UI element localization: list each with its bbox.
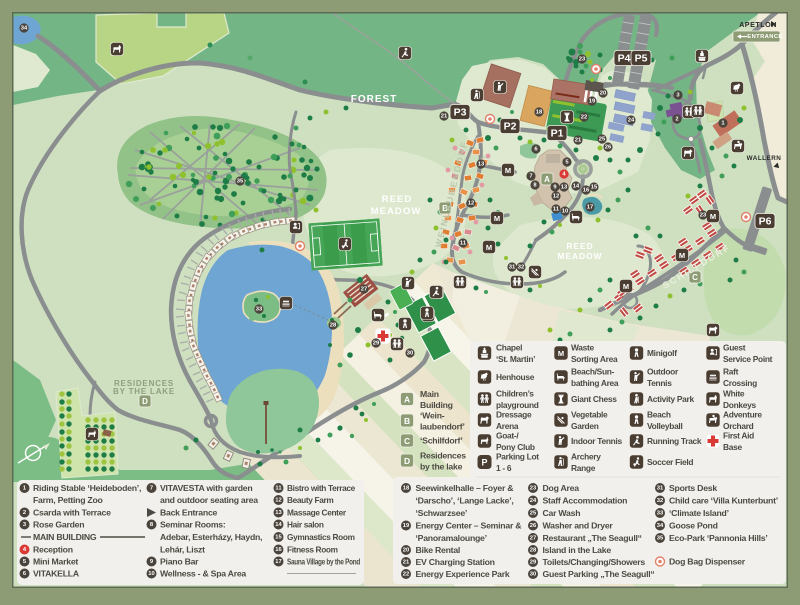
svg-text:33: 33 [256, 306, 263, 312]
svg-text:Energy Experience Park: Energy Experience Park [416, 569, 510, 579]
svg-text:Reception: Reception [33, 545, 73, 555]
svg-text:22: 22 [581, 114, 587, 120]
svg-text:Raft: Raft [723, 367, 739, 377]
svg-text:34: 34 [657, 523, 664, 529]
svg-text:First Aid: First Aid [723, 431, 754, 441]
svg-text:10: 10 [148, 571, 154, 577]
svg-text:Seminar Rooms:: Seminar Rooms: [160, 520, 226, 530]
svg-text:28: 28 [530, 547, 537, 553]
svg-text:‘Darscho’, ‘Lange Lacke’,: ‘Darscho’, ‘Lange Lacke’, [416, 496, 514, 506]
svg-text:Toilets/Changing/Showers: Toilets/Changing/Showers [543, 557, 646, 567]
svg-text:P4: P4 [618, 53, 631, 65]
svg-text:Sports Desk: Sports Desk [669, 483, 717, 493]
svg-text:22: 22 [403, 571, 409, 577]
svg-text:‘Schwarzsee’: ‘Schwarzsee’ [416, 508, 468, 518]
svg-text:Arena: Arena [496, 421, 519, 431]
svg-text:Adventure: Adventure [723, 410, 762, 420]
svg-text:Henhouse: Henhouse [496, 372, 535, 382]
svg-text:Guest Parking „The Seagull“: Guest Parking „The Seagull“ [543, 569, 655, 579]
svg-text:20: 20 [403, 547, 409, 553]
svg-text:20: 20 [600, 90, 606, 96]
svg-text:FOREST: FOREST [351, 94, 398, 105]
svg-text:Soccer Field: Soccer Field [647, 457, 693, 467]
svg-text:10: 10 [562, 208, 568, 214]
svg-text:Vegetable: Vegetable [571, 410, 608, 420]
svg-text:laubendorf’: laubendorf’ [420, 421, 465, 431]
svg-text:14: 14 [275, 522, 282, 528]
svg-text:Residences: Residences [420, 450, 466, 460]
svg-text:2: 2 [675, 116, 678, 122]
svg-text:Staff Accommodation: Staff Accommodation [543, 496, 628, 506]
svg-text:Sauna Village by the Pond: Sauna Village by the Pond [287, 557, 360, 567]
svg-text:Volleyball: Volleyball [647, 421, 682, 431]
svg-text:19: 19 [589, 98, 596, 104]
svg-text:Island in the Lake: Island in the Lake [543, 545, 612, 555]
svg-text:Crossing: Crossing [723, 378, 757, 388]
svg-text:ENTRANCE: ENTRANCE [747, 34, 782, 40]
svg-text:19: 19 [403, 523, 410, 529]
svg-text:Car Wash: Car Wash [543, 508, 581, 518]
svg-text:Energy Center – Seminar &: Energy Center – Seminar & [416, 521, 522, 531]
svg-text:29: 29 [530, 559, 537, 565]
svg-text:18: 18 [403, 485, 410, 491]
svg-text:VITAVESTA with garden: VITAVESTA with garden [160, 483, 252, 493]
svg-text:14: 14 [573, 183, 580, 189]
svg-text:Children’s: Children’s [496, 389, 534, 399]
svg-text:Gymnastics Room: Gymnastics Room [287, 532, 355, 542]
svg-text:25: 25 [530, 510, 537, 516]
svg-text:23: 23 [579, 56, 586, 62]
svg-text:Riding Stable ‘Heideboden’,: Riding Stable ‘Heideboden’, [33, 483, 141, 493]
svg-text:Indoor Tennis: Indoor Tennis [571, 436, 622, 446]
svg-text:Washer and Dryer: Washer and Dryer [543, 521, 614, 531]
svg-text:Base: Base [723, 442, 742, 452]
svg-text:7: 7 [529, 173, 532, 179]
svg-text:Eco-Park ‘Pannonia Hills’: Eco-Park ‘Pannonia Hills’ [669, 533, 768, 543]
svg-text:11: 11 [460, 240, 467, 246]
svg-text:bathing Area: bathing Area [571, 378, 619, 388]
svg-text:Beach/Sun-: Beach/Sun- [571, 367, 615, 377]
svg-text:25: 25 [599, 136, 606, 142]
svg-text:Bistro with Terrace: Bistro with Terrace [287, 483, 356, 493]
svg-text:Piano Bar: Piano Bar [160, 557, 199, 567]
svg-text:32: 32 [657, 498, 663, 504]
svg-text:EV Charging Station: EV Charging Station [416, 557, 495, 567]
svg-text:Dog Area: Dog Area [543, 483, 580, 493]
svg-text:P1: P1 [551, 128, 564, 140]
svg-text:by the lake: by the lake [420, 461, 463, 471]
svg-text:12: 12 [468, 200, 474, 206]
svg-text:‘Schilfdorf’: ‘Schilfdorf’ [420, 436, 463, 446]
svg-text:Chapel: Chapel [496, 343, 522, 353]
svg-text:16: 16 [275, 547, 282, 553]
svg-text:‘Wein-: ‘Wein- [420, 410, 445, 420]
svg-text:12: 12 [553, 193, 559, 199]
svg-text:Outdoor: Outdoor [647, 367, 679, 377]
svg-text:24: 24 [628, 117, 635, 123]
svg-text:M: M [679, 251, 685, 260]
svg-text:Adebar, Esterházy, Haydn,: Adebar, Esterházy, Haydn, [160, 532, 262, 542]
svg-text:‘Climate Island’: ‘Climate Island’ [669, 508, 729, 518]
svg-text:23: 23 [700, 212, 707, 218]
svg-text:REED: REED [382, 194, 413, 205]
svg-text:WALLERN: WALLERN [747, 155, 782, 162]
svg-text:29: 29 [373, 340, 380, 346]
svg-text:Service Point: Service Point [723, 354, 773, 364]
svg-text:17: 17 [587, 204, 593, 210]
svg-text:Parking Lot: Parking Lot [496, 452, 539, 462]
svg-text:21: 21 [403, 559, 410, 565]
svg-text:Tennis: Tennis [647, 378, 672, 388]
svg-text:P2: P2 [504, 121, 517, 133]
svg-text:Goat-/: Goat-/ [496, 431, 519, 441]
svg-text:Mini Market: Mini Market [33, 557, 78, 567]
svg-text:35: 35 [237, 178, 244, 184]
svg-text:MEADOW: MEADOW [371, 206, 422, 217]
svg-text:Range: Range [571, 463, 596, 473]
svg-text:27: 27 [530, 535, 536, 541]
svg-text:13: 13 [275, 510, 282, 516]
svg-text:24: 24 [530, 498, 537, 504]
svg-text:M: M [558, 349, 564, 358]
svg-text:33: 33 [657, 510, 664, 516]
svg-text:D: D [404, 456, 410, 466]
svg-text:Building: Building [420, 400, 453, 410]
svg-text:30: 30 [530, 571, 536, 577]
svg-text:A: A [544, 175, 550, 184]
svg-text:M: M [486, 243, 492, 252]
svg-text:P5: P5 [635, 53, 648, 65]
svg-text:B: B [404, 416, 410, 426]
svg-text:Restaurant „The Seagull“: Restaurant „The Seagull“ [543, 533, 642, 543]
svg-text:Donkeys: Donkeys [723, 400, 756, 410]
svg-text:15: 15 [591, 184, 598, 190]
svg-text:Rose Garden: Rose Garden [33, 520, 84, 530]
svg-text:31: 31 [509, 264, 516, 270]
svg-text:M: M [494, 214, 500, 223]
svg-text:Activity Park: Activity Park [647, 394, 694, 404]
svg-text:Minigolf: Minigolf [647, 348, 677, 358]
svg-text:13: 13 [561, 184, 568, 190]
svg-text:12: 12 [275, 497, 281, 503]
svg-text:MEADOW: MEADOW [557, 251, 602, 261]
svg-text:21: 21 [441, 113, 448, 119]
svg-text:Farm, Petting Zoo: Farm, Petting Zoo [33, 495, 103, 505]
svg-text:7: 7 [150, 485, 153, 491]
svg-text:Csarda with Terrace: Csarda with Terrace [33, 508, 111, 518]
svg-text:31: 31 [657, 485, 664, 491]
svg-text:Garden: Garden [571, 421, 599, 431]
svg-text:30: 30 [407, 350, 413, 356]
svg-text:2: 2 [23, 510, 26, 516]
svg-text:P6: P6 [759, 216, 772, 228]
svg-text:Dog Bag Dispenser: Dog Bag Dispenser [669, 557, 746, 567]
svg-text:M: M [623, 282, 629, 291]
svg-text:28: 28 [330, 322, 337, 328]
svg-text:Waste: Waste [571, 343, 594, 353]
svg-text:A: A [404, 395, 410, 405]
svg-text:Beauty Farm: Beauty Farm [287, 495, 333, 505]
svg-text:Orchard: Orchard [723, 421, 754, 431]
svg-text:11: 11 [275, 485, 282, 491]
svg-text:16: 16 [583, 187, 590, 193]
svg-text:Goose Pond: Goose Pond [669, 521, 718, 531]
svg-text:1 - 6: 1 - 6 [496, 463, 512, 473]
svg-text:P3: P3 [454, 107, 467, 119]
svg-text:and outdoor seating area: and outdoor seating area [160, 495, 258, 505]
svg-text:26: 26 [605, 144, 612, 150]
svg-text:‘St. Martin’: ‘St. Martin’ [496, 354, 535, 364]
svg-text:Main: Main [420, 389, 439, 399]
svg-text:Guest: Guest [723, 343, 746, 353]
svg-text:D: D [142, 397, 148, 406]
svg-text:MAIN BUILDING: MAIN BUILDING [33, 532, 97, 542]
svg-text:Lehár, Liszt: Lehár, Liszt [160, 545, 205, 555]
svg-text:Fitness Room: Fitness Room [287, 545, 338, 555]
svg-text:34: 34 [21, 25, 28, 31]
svg-text:26: 26 [530, 523, 537, 529]
svg-text:32: 32 [518, 264, 524, 270]
svg-text:M: M [505, 166, 511, 175]
svg-text:Giant Chess: Giant Chess [571, 394, 617, 404]
svg-text:Beach: Beach [647, 410, 671, 420]
svg-text:18: 18 [536, 109, 543, 115]
svg-text:35: 35 [657, 535, 664, 541]
svg-text:‘Panoramalounge’: ‘Panoramalounge’ [416, 533, 487, 543]
svg-text:Archery: Archery [571, 452, 601, 462]
svg-text:REED: REED [566, 241, 593, 251]
svg-text:Back Entrance: Back Entrance [160, 508, 218, 518]
svg-text:Dressage: Dressage [496, 410, 532, 420]
svg-text:Pony Club: Pony Club [496, 442, 535, 452]
svg-text:Massage Center: Massage Center [287, 508, 347, 518]
svg-text:Seewinkelhalle – Foyer &: Seewinkelhalle – Foyer & [416, 483, 514, 493]
svg-text:VITAKELLA: VITAKELLA [33, 569, 80, 579]
svg-text:27: 27 [361, 286, 367, 292]
svg-text:23: 23 [530, 485, 537, 491]
svg-text:C: C [404, 436, 410, 446]
svg-text:playground: playground [496, 400, 539, 410]
svg-text:11: 11 [553, 206, 560, 212]
svg-text:15: 15 [275, 534, 282, 540]
svg-text:Bike Rental: Bike Rental [416, 545, 461, 555]
svg-text:White: White [723, 389, 745, 399]
svg-text:Wellness - & Spa Area: Wellness - & Spa Area [160, 569, 246, 579]
svg-text:Hair salon: Hair salon [287, 520, 324, 530]
svg-text:M: M [710, 212, 716, 221]
svg-text:Child care ‘Villa Kunterbunt’: Child care ‘Villa Kunterbunt’ [669, 496, 778, 506]
svg-text:17: 17 [275, 559, 281, 565]
svg-text:13: 13 [478, 161, 485, 167]
svg-text:P: P [481, 458, 487, 468]
svg-text:21: 21 [575, 137, 582, 143]
svg-text:Running Track: Running Track [647, 436, 702, 446]
svg-text:BY THE LAKE: BY THE LAKE [113, 387, 175, 396]
svg-text:Sorting Area: Sorting Area [571, 354, 618, 364]
